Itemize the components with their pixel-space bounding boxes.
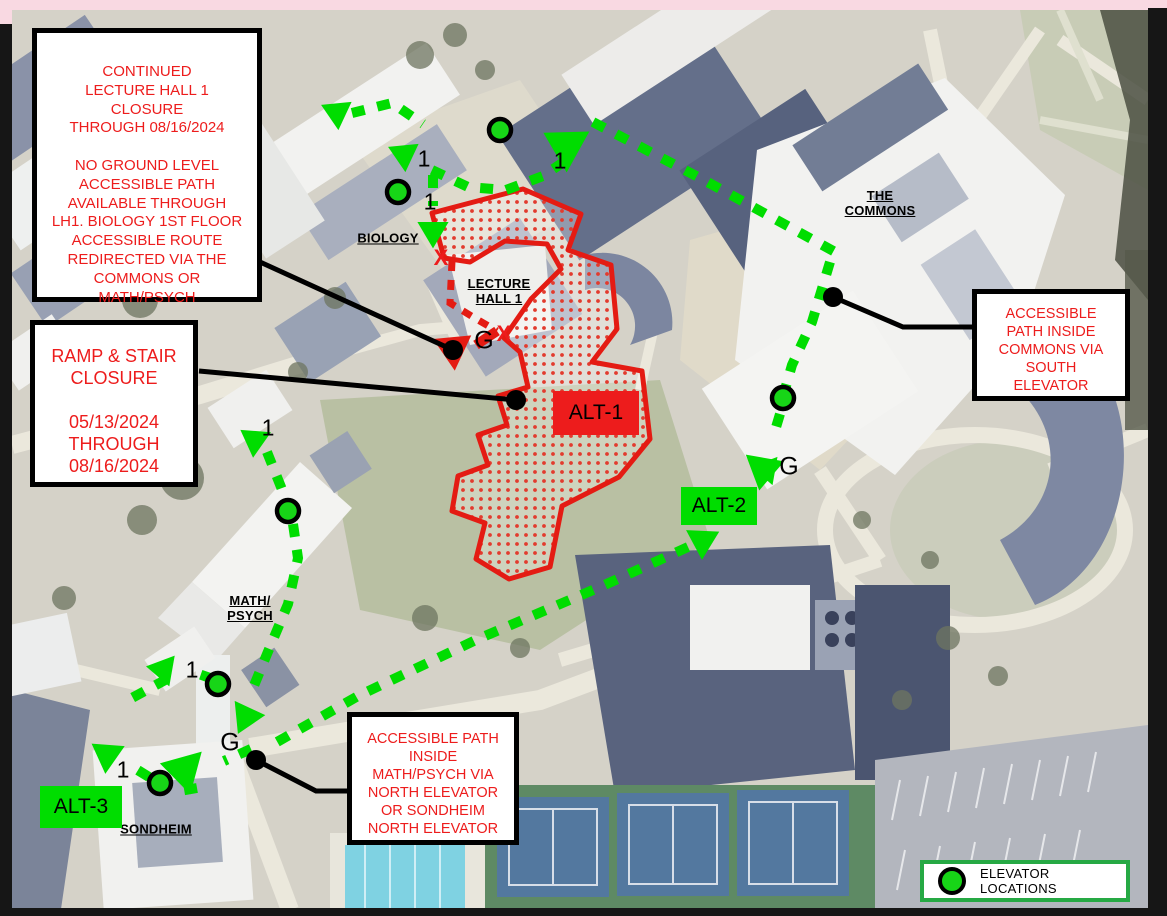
elevator-icon — [149, 772, 171, 794]
elevator-icon — [277, 500, 299, 522]
elevator-icon — [207, 673, 229, 695]
route-sondheim-c — [136, 769, 149, 777]
tennis-courts — [480, 785, 890, 908]
map-canvas — [0, 0, 1167, 916]
elevator-icon — [489, 119, 511, 141]
campus-accessibility-map: { "notes": { "lh1_closure": "CONTINUED\n… — [0, 0, 1167, 916]
elevator-icon — [772, 387, 794, 409]
pool — [330, 833, 485, 916]
elevator-icon — [387, 181, 409, 203]
